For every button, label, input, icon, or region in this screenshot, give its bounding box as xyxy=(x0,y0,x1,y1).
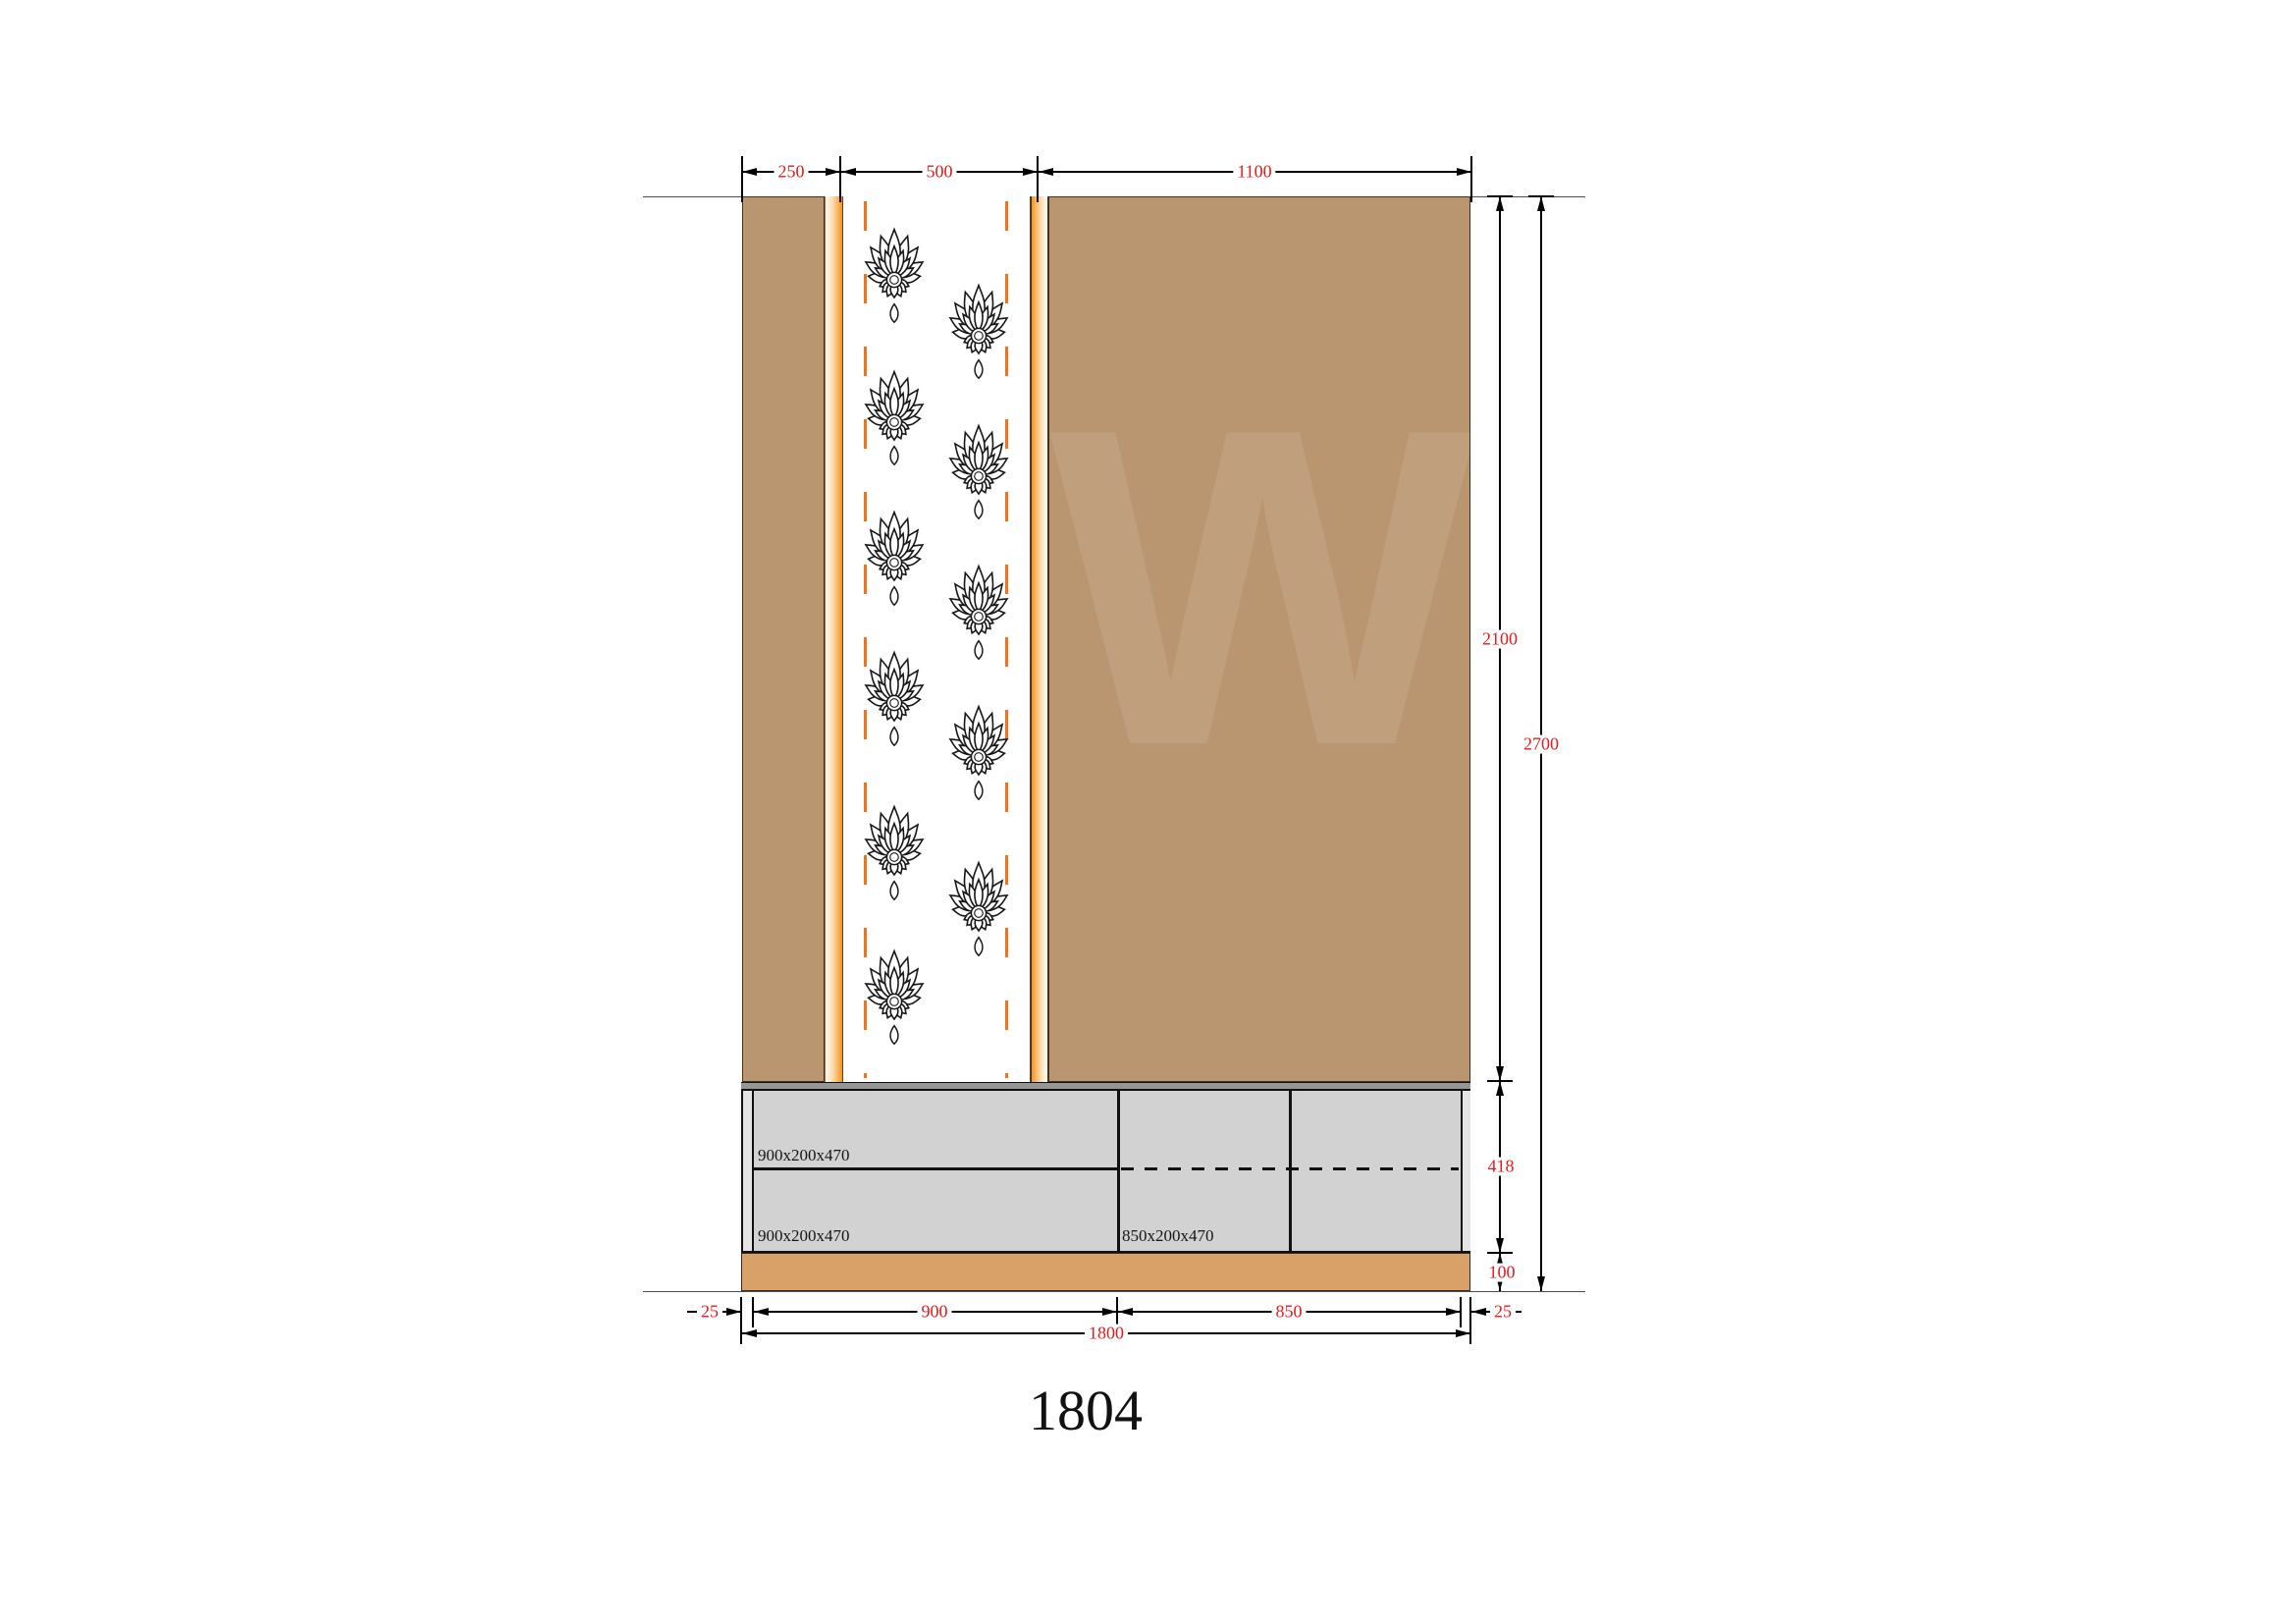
dim-arrow xyxy=(1023,168,1038,176)
dim-arrow xyxy=(742,168,757,176)
cabinet-section-divider xyxy=(1117,1089,1120,1253)
floor-guide-line xyxy=(643,1291,1585,1292)
dim-label-25-left: 25 xyxy=(697,1303,722,1322)
dim-arrow xyxy=(841,168,856,176)
dim-label-1800: 1800 xyxy=(1085,1325,1128,1343)
cabinet-right-side-panel xyxy=(1461,1089,1470,1253)
dim-label-2700: 2700 xyxy=(1520,735,1563,754)
dim-arrow xyxy=(1496,1238,1504,1253)
flower-ornament xyxy=(863,951,926,1045)
dim-arrow xyxy=(1537,1276,1545,1291)
left-orange-accent-strip xyxy=(825,196,842,1082)
flower-ornament xyxy=(947,863,1010,956)
right-wood-panel: W xyxy=(1048,196,1470,1082)
left-wood-panel xyxy=(742,196,825,1082)
dim-tick xyxy=(1037,156,1039,202)
dim-tick xyxy=(1470,156,1472,202)
flower-ornament xyxy=(863,230,926,323)
dim-label-1100: 1100 xyxy=(1233,163,1275,182)
door-dashed-line xyxy=(1121,1167,1459,1170)
watermark-logo: W xyxy=(1049,362,1469,814)
flower-ornament xyxy=(863,372,926,465)
drawer-divider-line xyxy=(753,1167,1117,1170)
dim-label-900: 900 xyxy=(918,1303,952,1322)
doors-size-label: 850x200x470 xyxy=(1122,1227,1214,1244)
flower-ornament xyxy=(947,426,1010,519)
dim-arrow xyxy=(1496,196,1504,211)
dim-tick xyxy=(839,156,841,202)
drawer-bottom-size-label: 900x200x470 xyxy=(758,1227,850,1244)
dim-arrow xyxy=(742,1329,757,1337)
cabinet-body xyxy=(741,1089,1470,1253)
dim-arrow xyxy=(1537,196,1545,211)
dim-arrow xyxy=(726,1308,741,1316)
cabinet-countertop xyxy=(741,1082,1470,1089)
dim-tick xyxy=(741,156,743,202)
dim-label-850: 850 xyxy=(1272,1303,1307,1322)
dim-label-2100: 2100 xyxy=(1478,630,1522,649)
dim-label-418: 418 xyxy=(1484,1158,1519,1176)
drawer-top-size-label: 900x200x470 xyxy=(758,1147,850,1163)
door-divider xyxy=(1289,1089,1292,1253)
flower-pattern-layer xyxy=(843,196,1032,1082)
dim-label-500: 500 xyxy=(923,163,957,182)
flower-ornament xyxy=(863,513,926,606)
dim-arrow xyxy=(1118,1308,1133,1316)
dim-arrow xyxy=(1496,1066,1504,1081)
dim-arrow xyxy=(1446,1308,1461,1316)
flower-ornament xyxy=(947,286,1010,379)
dim-label-250: 250 xyxy=(774,163,809,182)
flower-ornament xyxy=(947,707,1010,800)
cabinet-plinth xyxy=(741,1253,1470,1291)
dim-label-25-right: 25 xyxy=(1490,1303,1516,1322)
right-chain-dimension-line xyxy=(1499,196,1501,1291)
dim-arrow xyxy=(754,1308,769,1316)
flower-ornament xyxy=(863,807,926,900)
dim-arrow xyxy=(1471,1308,1486,1316)
technical-drawing: W 900x200x470 900x200x470 850x200x470 25… xyxy=(0,0,2296,1623)
dim-arrow xyxy=(1456,1329,1470,1337)
dim-arrow xyxy=(826,168,840,176)
dim-arrow xyxy=(1496,1081,1504,1096)
right-orange-accent-strip xyxy=(1031,196,1048,1082)
drawing-title: 1804 xyxy=(1029,1382,1143,1439)
cabinet-left-side-panel xyxy=(741,1089,754,1253)
dim-arrow xyxy=(1457,168,1471,176)
dim-arrow xyxy=(1102,1308,1117,1316)
flower-ornament xyxy=(863,653,926,746)
ornament-strip xyxy=(842,196,1031,1082)
dim-label-100: 100 xyxy=(1485,1264,1520,1282)
dim-arrow xyxy=(1039,168,1053,176)
flower-ornament xyxy=(947,567,1010,660)
